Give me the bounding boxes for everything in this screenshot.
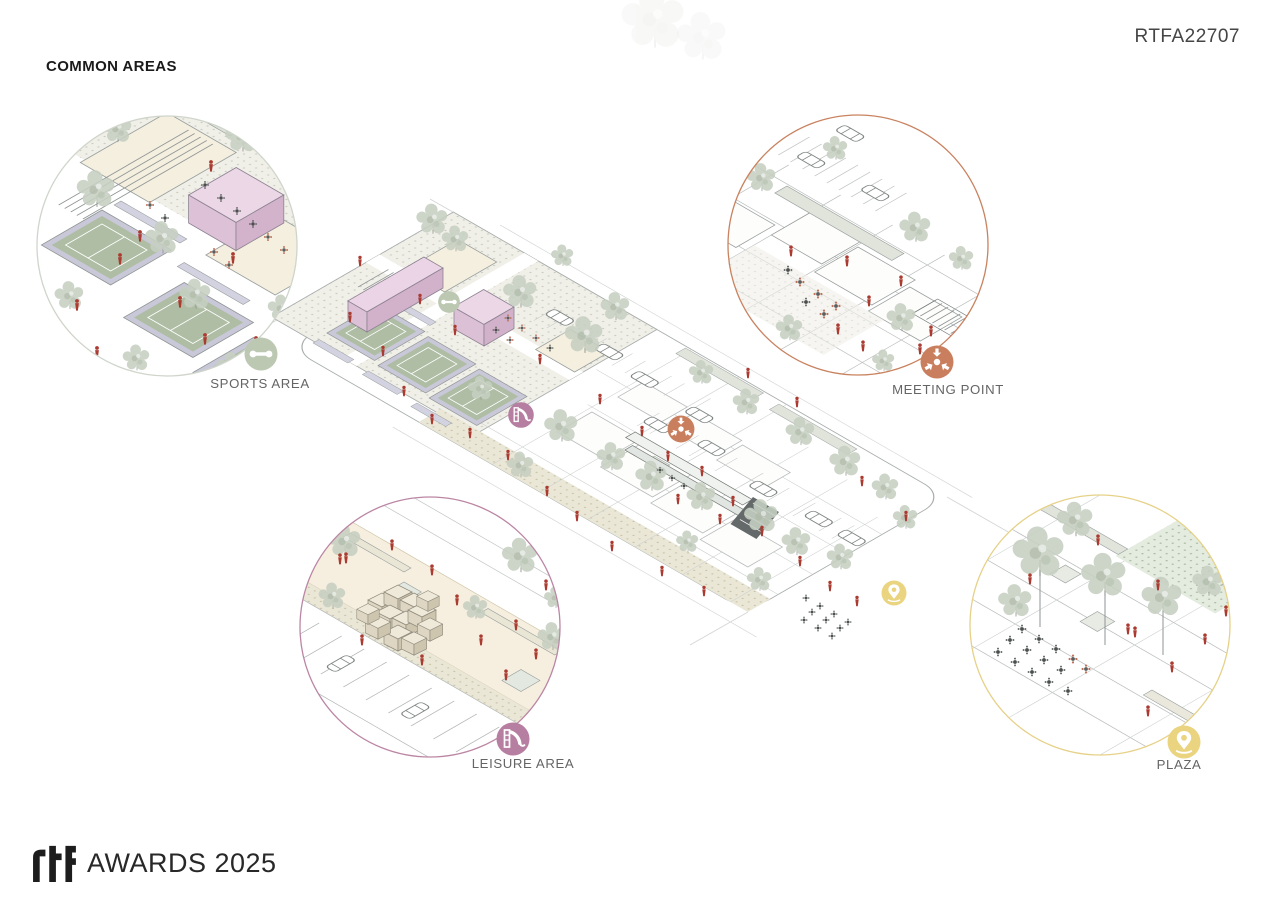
page-title: COMMON AREAS bbox=[46, 58, 177, 75]
sports-area-label: SPORTS AREA bbox=[210, 376, 309, 391]
award-text: AWARDS 2025 bbox=[87, 848, 277, 879]
meeting-point-icon bbox=[921, 346, 954, 379]
plaza-plan-badge bbox=[882, 581, 907, 606]
presentation-board: SPORTS AREA MEETING POINT LEISURE AREA P… bbox=[0, 0, 1273, 900]
leisure-area-label: LEISURE AREA bbox=[472, 756, 574, 771]
plaza-icon bbox=[1168, 726, 1201, 759]
project-code: RTFA22707 bbox=[1134, 26, 1240, 48]
plaza-label: PLAZA bbox=[1157, 757, 1202, 772]
rtf-logo bbox=[30, 843, 78, 883]
sports-area-plan-badge bbox=[438, 291, 460, 313]
leisure-area-icon bbox=[497, 723, 530, 756]
meeting-point-plan-badge bbox=[668, 416, 695, 443]
site-plan-canvas: SPORTS AREA MEETING POINT LEISURE AREA P… bbox=[0, 0, 1273, 900]
footer-brand: AWARDS 2025 bbox=[30, 843, 277, 883]
leisure-area-plan-badge bbox=[508, 402, 534, 428]
sports-area-icon bbox=[245, 338, 278, 371]
meeting-point-label: MEETING POINT bbox=[892, 382, 1004, 397]
